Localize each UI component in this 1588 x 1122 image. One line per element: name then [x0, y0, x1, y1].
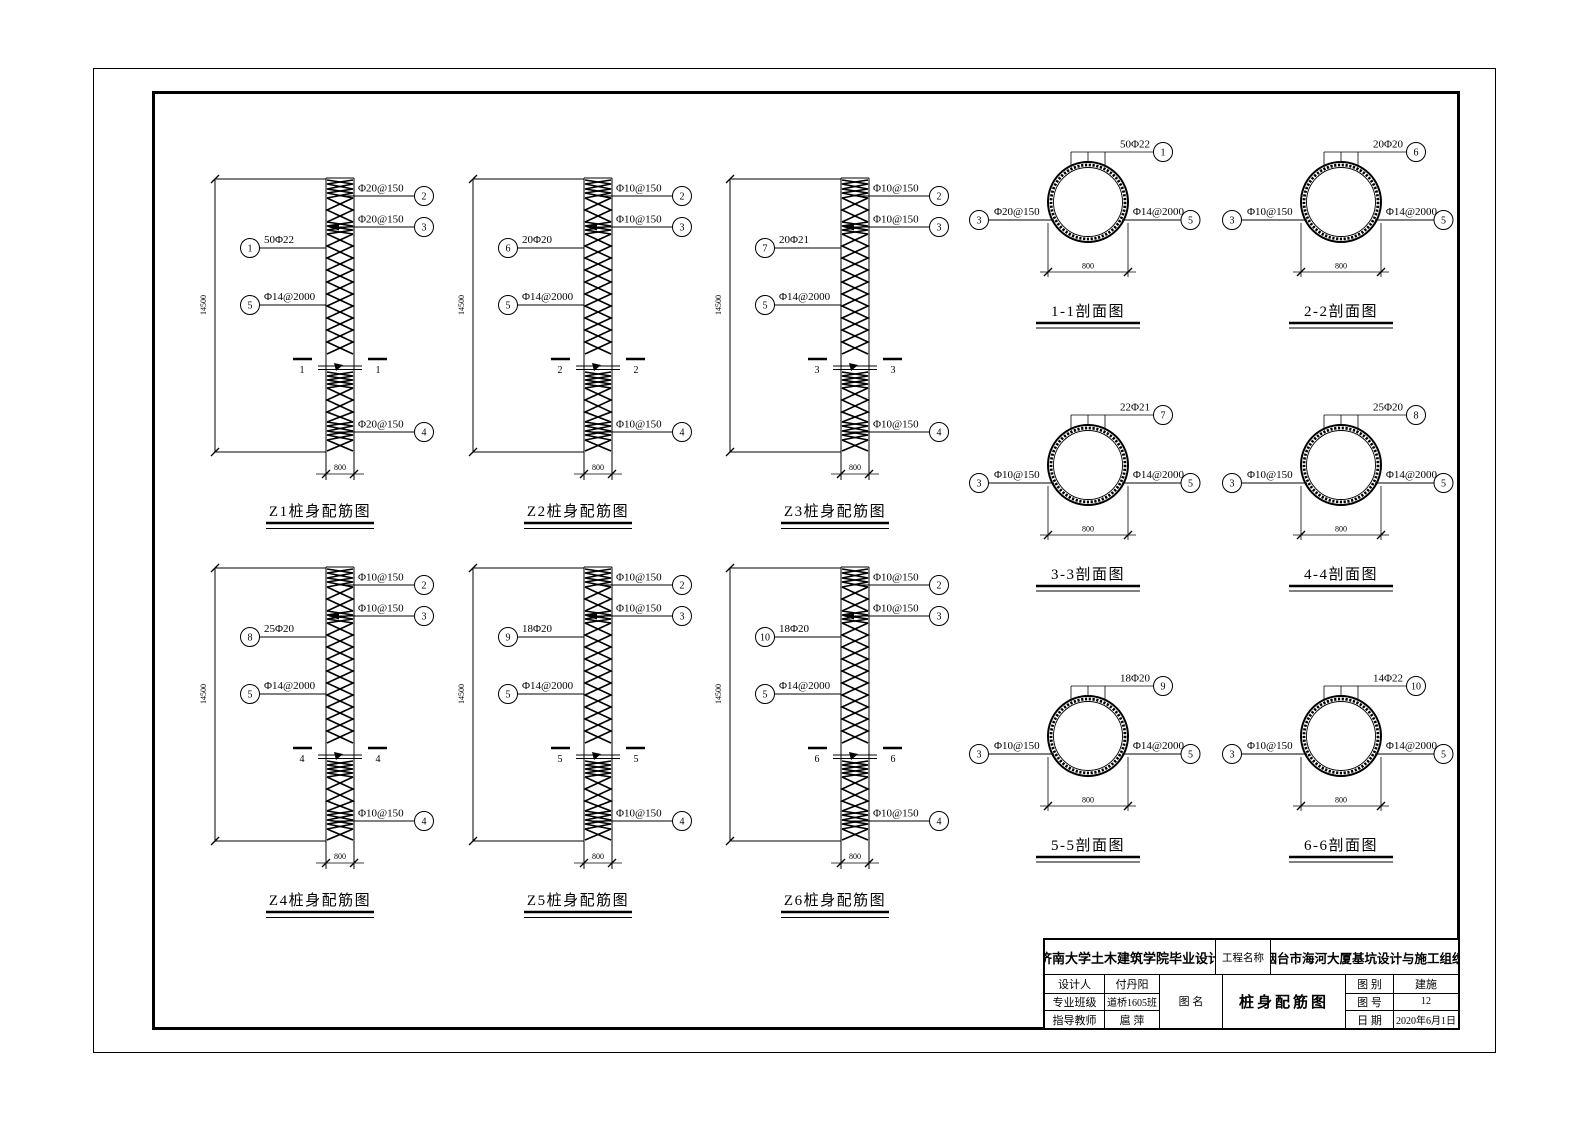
- section-title: 6-6剖面图: [1304, 837, 1378, 854]
- section-title: 1-1剖面图: [1051, 303, 1125, 320]
- upper-hoop-label: Φ10@150: [616, 214, 662, 226]
- elevation-title: Z6桩身配筋图: [784, 892, 886, 909]
- main-bar-ref-number: 10: [760, 633, 770, 644]
- bottom-hoop-ref-number: 4: [422, 817, 427, 828]
- category-label: 图 别: [1345, 975, 1393, 993]
- upper-hoop-label: Φ10@150: [616, 603, 662, 615]
- bottom-hoop-ref-number: 4: [937, 428, 942, 439]
- main-bar-ref-number: 8: [1414, 411, 1419, 422]
- width-dimension: 800: [1335, 262, 1347, 271]
- width-dimension: 800: [334, 852, 346, 861]
- upper-hoop-ref-number: 3: [680, 612, 685, 623]
- bottom-hoop-label: Φ20@150: [358, 419, 404, 431]
- upper-hoop-label: Φ10@150: [873, 603, 919, 615]
- stiffener-label: Φ14@2000: [264, 680, 316, 692]
- drawing-name-label: 图 名: [1159, 975, 1222, 1028]
- top-hoop-label: Φ10@150: [616, 183, 662, 195]
- top-hoop-label: Φ10@150: [358, 572, 404, 584]
- stiffener-label: Φ14@2000: [779, 680, 831, 692]
- hoop-ref-number: 3: [977, 750, 982, 761]
- stiffener-ref-number: 5: [1188, 216, 1193, 227]
- main-bar-ref-number: 6: [1414, 148, 1419, 159]
- hoop-ref-number: 3: [1230, 216, 1235, 227]
- bottom-hoop-label: Φ10@150: [873, 419, 919, 431]
- top-hoop-ref-number: 2: [937, 192, 942, 203]
- elevation-title: Z3桩身配筋图: [784, 503, 886, 520]
- upper-hoop-ref-number: 3: [422, 223, 427, 234]
- bottom-hoop-label: Φ10@150: [616, 808, 662, 820]
- height-dimension: 14500: [457, 684, 466, 704]
- pile-elevation-view: Φ10@150 2 Φ10@150 3 20Φ21 7 Φ14@2000 5 Φ…: [713, 170, 963, 545]
- date-label: 日 期: [1345, 1010, 1393, 1028]
- main-bar-ref-number: 8: [248, 633, 253, 644]
- stiffener-ref-number: 5: [1188, 479, 1193, 490]
- number-label: 图 号: [1345, 993, 1393, 1011]
- advisor-value: 扈 萍: [1104, 1010, 1159, 1028]
- hoop-label: Φ10@150: [1247, 469, 1293, 481]
- cut-mark-label-left: 4: [300, 754, 305, 765]
- height-dimension: 14500: [199, 295, 208, 315]
- hoop-ref-number: 3: [977, 479, 982, 490]
- pile-section-view: 14Φ22 10 Φ10@150 3 Φ14@2000 5 800 6-6剖面图: [1211, 664, 1471, 894]
- advisor-label: 指导教师: [1045, 1010, 1104, 1028]
- number-value: 12: [1393, 993, 1458, 1011]
- main-bar-label: 25Φ20: [264, 623, 295, 635]
- width-dimension: 800: [592, 463, 604, 472]
- stiffener-ref-number: 5: [248, 301, 253, 312]
- hoop-label: Φ20@150: [994, 206, 1040, 218]
- bottom-hoop-label: Φ10@150: [873, 808, 919, 820]
- hoop-ref-number: 3: [977, 216, 982, 227]
- designer-value: 付丹阳: [1104, 975, 1159, 993]
- pile-elevation-view: Φ10@150 2 Φ10@150 3 18Φ20 10 Φ14@2000 5 …: [713, 559, 963, 934]
- cut-mark-label-left: 6: [815, 754, 820, 765]
- top-hoop-ref-number: 2: [422, 581, 427, 592]
- top-hoop-ref-number: 2: [937, 581, 942, 592]
- upper-hoop-label: Φ20@150: [358, 214, 404, 226]
- stiffener-ref-number: 5: [506, 301, 511, 312]
- top-hoop-label: Φ10@150: [873, 572, 919, 584]
- stiffener-label: Φ14@2000: [1133, 469, 1185, 481]
- stiffener-ref-number: 5: [1441, 216, 1446, 227]
- cut-mark-label-right: 2: [634, 365, 639, 376]
- stiffener-label: Φ14@2000: [779, 291, 831, 303]
- stiffener-label: Φ14@2000: [522, 291, 574, 303]
- stiffener-ref-number: 5: [763, 301, 768, 312]
- project-name-value: 烟台市海河大厦基坑设计与施工组织: [1270, 940, 1458, 974]
- width-dimension: 800: [1335, 796, 1347, 805]
- hoop-label: Φ10@150: [994, 740, 1040, 752]
- title-block: 济南大学土木建筑学院毕业设计 工程名称 烟台市海河大厦基坑设计与施工组织 设计人…: [1043, 938, 1460, 1030]
- pile-section-view: 20Φ20 6 Φ10@150 3 Φ14@2000 5 800 2-2剖面图: [1211, 130, 1471, 360]
- section-title: 5-5剖面图: [1051, 837, 1125, 854]
- stiffener-label: Φ14@2000: [1386, 469, 1438, 481]
- top-hoop-label: Φ10@150: [873, 183, 919, 195]
- stiffener-label: Φ14@2000: [1133, 206, 1185, 218]
- cut-mark-label-right: 6: [891, 754, 896, 765]
- university-title: 济南大学土木建筑学院毕业设计: [1045, 940, 1215, 974]
- date-value: 2020年6月1日: [1393, 1010, 1458, 1028]
- width-dimension: 800: [592, 852, 604, 861]
- stiffener-ref-number: 5: [1441, 479, 1446, 490]
- cut-mark-label-left: 3: [815, 365, 820, 376]
- main-bar-label: 20Φ21: [779, 234, 809, 246]
- main-bar-ref-number: 9: [1161, 682, 1166, 693]
- main-bar-ref-number: 9: [506, 633, 511, 644]
- elevation-title: Z4桩身配筋图: [269, 892, 371, 909]
- bottom-hoop-ref-number: 4: [422, 428, 427, 439]
- stiffener-label: Φ14@2000: [1386, 206, 1438, 218]
- top-hoop-label: Φ20@150: [358, 183, 404, 195]
- cut-mark-label-right: 5: [634, 754, 639, 765]
- pile-elevation-view: Φ10@150 2 Φ10@150 3 20Φ20 6 Φ14@2000 5 Φ…: [456, 170, 706, 545]
- upper-hoop-ref-number: 3: [422, 612, 427, 623]
- section-title: 4-4剖面图: [1304, 566, 1378, 583]
- width-dimension: 800: [334, 463, 346, 472]
- height-dimension: 14500: [714, 295, 723, 315]
- main-bar-ref-number: 10: [1411, 682, 1421, 693]
- class-value: 道桥1605班: [1104, 993, 1159, 1011]
- upper-hoop-ref-number: 3: [937, 223, 942, 234]
- main-bar-ref-number: 1: [248, 244, 253, 255]
- stiffener-ref-number: 5: [1441, 750, 1446, 761]
- section-title: 3-3剖面图: [1051, 566, 1125, 583]
- upper-hoop-label: Φ10@150: [873, 214, 919, 226]
- main-bar-ref-number: 6: [506, 244, 511, 255]
- main-bar-label: 50Φ22: [1120, 139, 1150, 151]
- upper-hoop-label: Φ10@150: [358, 603, 404, 615]
- main-bar-label: 20Φ20: [1373, 139, 1404, 151]
- drawing-sheet: Φ20@150 2 Φ20@150 3 50Φ22 1 Φ14@2000 5 Φ…: [0, 0, 1588, 1122]
- width-dimension: 800: [1082, 525, 1094, 534]
- main-bar-ref-number: 7: [1161, 411, 1166, 422]
- designer-label: 设计人: [1045, 975, 1104, 993]
- pile-section-view: 18Φ20 9 Φ10@150 3 Φ14@2000 5 800 5-5剖面图: [958, 664, 1218, 894]
- main-bar-label: 50Φ22: [264, 234, 294, 246]
- height-dimension: 14500: [714, 684, 723, 704]
- main-bar-ref-number: 7: [763, 244, 768, 255]
- bottom-hoop-label: Φ10@150: [358, 808, 404, 820]
- cut-mark-label-right: 4: [376, 754, 381, 765]
- main-bar-label: 18Φ20: [522, 623, 553, 635]
- upper-hoop-ref-number: 3: [937, 612, 942, 623]
- width-dimension: 800: [1082, 262, 1094, 271]
- stiffener-ref-number: 5: [1188, 750, 1193, 761]
- upper-hoop-ref-number: 3: [680, 223, 685, 234]
- class-label: 专业班级: [1045, 993, 1104, 1011]
- stiffener-label: Φ14@2000: [1386, 740, 1438, 752]
- pile-section-view: 25Φ20 8 Φ10@150 3 Φ14@2000 5 800 4-4剖面图: [1211, 393, 1471, 623]
- main-bar-ref-number: 1: [1161, 148, 1166, 159]
- main-bar-label: 18Φ20: [1120, 673, 1151, 685]
- width-dimension: 800: [849, 852, 861, 861]
- stiffener-ref-number: 5: [248, 690, 253, 701]
- drawing-name-value: 桩身配筋图: [1222, 975, 1345, 1028]
- width-dimension: 800: [1335, 525, 1347, 534]
- pile-section-view: 50Φ22 1 Φ20@150 3 Φ14@2000 5 800 1-1剖面图: [958, 130, 1218, 360]
- stiffener-label: Φ14@2000: [264, 291, 316, 303]
- elevation-title: Z2桩身配筋图: [527, 503, 629, 520]
- project-name-label: 工程名称: [1215, 940, 1270, 974]
- height-dimension: 14500: [199, 684, 208, 704]
- hoop-label: Φ10@150: [994, 469, 1040, 481]
- bottom-hoop-ref-number: 4: [937, 817, 942, 828]
- top-hoop-label: Φ10@150: [616, 572, 662, 584]
- pile-elevation-view: Φ20@150 2 Φ20@150 3 50Φ22 1 Φ14@2000 5 Φ…: [198, 170, 448, 545]
- cut-mark-label-left: 5: [558, 754, 563, 765]
- section-title: 2-2剖面图: [1304, 303, 1378, 320]
- cut-mark-label-left: 2: [558, 365, 563, 376]
- top-hoop-ref-number: 2: [422, 192, 427, 203]
- elevation-title: Z1桩身配筋图: [269, 503, 371, 520]
- width-dimension: 800: [1082, 796, 1094, 805]
- pile-elevation-view: Φ10@150 2 Φ10@150 3 18Φ20 9 Φ14@2000 5 Φ…: [456, 559, 706, 934]
- bottom-hoop-label: Φ10@150: [616, 419, 662, 431]
- main-bar-label: 18Φ20: [779, 623, 810, 635]
- width-dimension: 800: [849, 463, 861, 472]
- hoop-ref-number: 3: [1230, 479, 1235, 490]
- cut-mark-label-right: 3: [891, 365, 896, 376]
- cut-mark-label-left: 1: [300, 365, 305, 376]
- hoop-label: Φ10@150: [1247, 740, 1293, 752]
- pile-section-view: 22Φ21 7 Φ10@150 3 Φ14@2000 5 800 3-3剖面图: [958, 393, 1218, 623]
- pile-elevation-view: Φ10@150 2 Φ10@150 3 25Φ20 8 Φ14@2000 5 Φ…: [198, 559, 448, 934]
- main-bar-label: 22Φ21: [1120, 402, 1150, 414]
- hoop-label: Φ10@150: [1247, 206, 1293, 218]
- elevation-title: Z5桩身配筋图: [527, 892, 629, 909]
- height-dimension: 14500: [457, 295, 466, 315]
- stiffener-label: Φ14@2000: [1133, 740, 1185, 752]
- hoop-ref-number: 3: [1230, 750, 1235, 761]
- main-bar-label: 14Φ22: [1373, 673, 1403, 685]
- top-hoop-ref-number: 2: [680, 581, 685, 592]
- cut-mark-label-right: 1: [376, 365, 381, 376]
- stiffener-ref-number: 5: [763, 690, 768, 701]
- main-bar-label: 20Φ20: [522, 234, 553, 246]
- main-bar-label: 25Φ20: [1373, 402, 1404, 414]
- bottom-hoop-ref-number: 4: [680, 817, 685, 828]
- bottom-hoop-ref-number: 4: [680, 428, 685, 439]
- stiffener-label: Φ14@2000: [522, 680, 574, 692]
- top-hoop-ref-number: 2: [680, 192, 685, 203]
- category-value: 建施: [1393, 975, 1458, 993]
- stiffener-ref-number: 5: [506, 690, 511, 701]
